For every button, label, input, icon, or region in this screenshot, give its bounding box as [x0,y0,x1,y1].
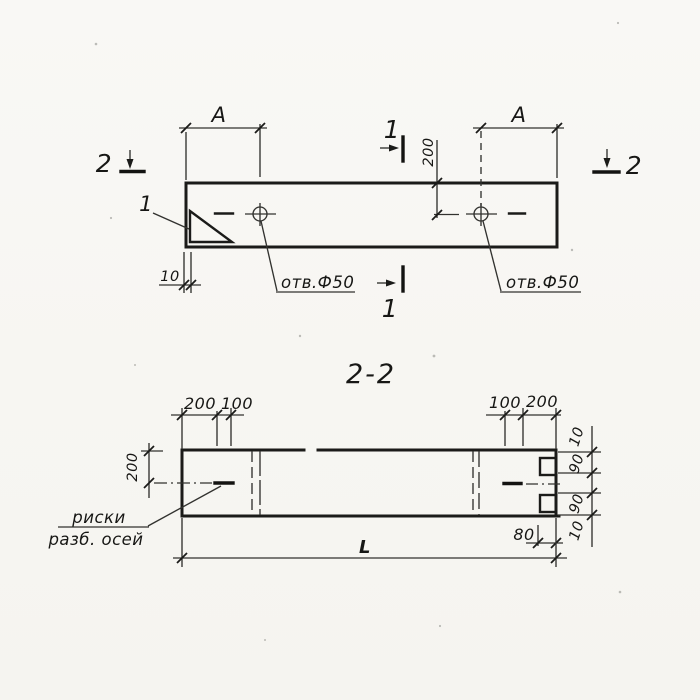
scan-speckle [264,639,266,641]
dimension-text: L [359,537,371,558]
scan-speckle [571,249,573,251]
dimension-a-left: A [179,103,267,180]
section-label: 1 [384,115,400,144]
section-label: 1 [382,294,398,323]
leader-line [261,221,277,291]
dimension-chain-right: 10 90 90 10 [558,425,601,547]
section-label: 2 [96,149,112,178]
corner-gusset-triangle [190,211,232,242]
scan-speckle [299,335,301,337]
section-marker-1-top: 1 [380,115,403,161]
section-marker-1-bottom: 1 [377,267,403,323]
scan-speckle [619,591,622,594]
dimension-text: 100 [221,394,253,413]
dimension-text: 200 [526,392,558,411]
scan-speckles [95,22,622,641]
dimension-text: A [510,103,527,127]
arrowhead-icon [389,145,399,152]
dimension-length: L [173,518,567,567]
dimension-text: 10 [567,425,588,448]
technical-drawing-canvas: 1 A [0,0,700,700]
section-marker-2-left: 2 [96,149,144,178]
scan-speckle [134,364,136,366]
arrowhead-icon [127,159,134,169]
scan-speckle [439,625,441,627]
dimensions-top-left: 200 100 [171,394,253,449]
section-title: 2-2 [346,359,396,390]
section-marker-2-right: 2 [594,149,642,180]
dimension-200-height: 200 [125,443,163,498]
section-view: 2-2 200 [47,359,601,567]
scan-speckle [617,22,619,24]
dimension-text: 100 [489,393,521,412]
axes-note-line1: риски [71,508,125,527]
leader-line [148,486,221,526]
mounting-hole-left [215,203,276,226]
mounting-hole-right [434,203,525,226]
scan-speckle [110,217,112,219]
hole-note-left: отв.Ф50 [261,221,355,292]
dimension-200-hole-offset: 200 [421,137,442,220]
dimension-text: 200 [184,394,216,413]
dimension-10-edge-offset: 10 [159,252,201,293]
drawing-sheet: 1 A [0,0,700,700]
hole-note-text: отв.Ф50 [281,273,354,292]
dimension-text: 10 [567,519,588,542]
plan-view: 1 A [96,103,642,323]
dimension-text: 10 [160,269,179,285]
corner-detail-callout-label: 1 [139,192,153,216]
scan-speckle [433,355,436,358]
end-notch-lower [540,495,556,512]
arrowhead-icon [386,280,396,287]
beam-outline [186,183,557,247]
dimension-text: A [210,103,227,127]
dimension-text: 90 [567,492,588,515]
corner-detail-leader-line [153,213,189,229]
dimension-text: 200 [421,137,437,166]
dimension-text: 200 [125,452,141,481]
end-notch-upper [540,458,556,475]
hole-note-text: отв.Ф50 [506,273,579,292]
arrowhead-icon [604,158,611,168]
dimensions-top-right: 100 200 [486,392,561,449]
leader-line [483,221,501,291]
dimension-a-right: A [473,103,564,206]
dimension-text: 90 [567,452,588,475]
axes-note-line2: разб. осей [47,530,143,549]
hole-note-right: отв.Ф50 [483,221,581,292]
section-label: 2 [626,151,642,180]
scan-speckle [95,43,98,46]
dimension-text: 80 [513,525,534,544]
axis-marks [154,483,561,484]
